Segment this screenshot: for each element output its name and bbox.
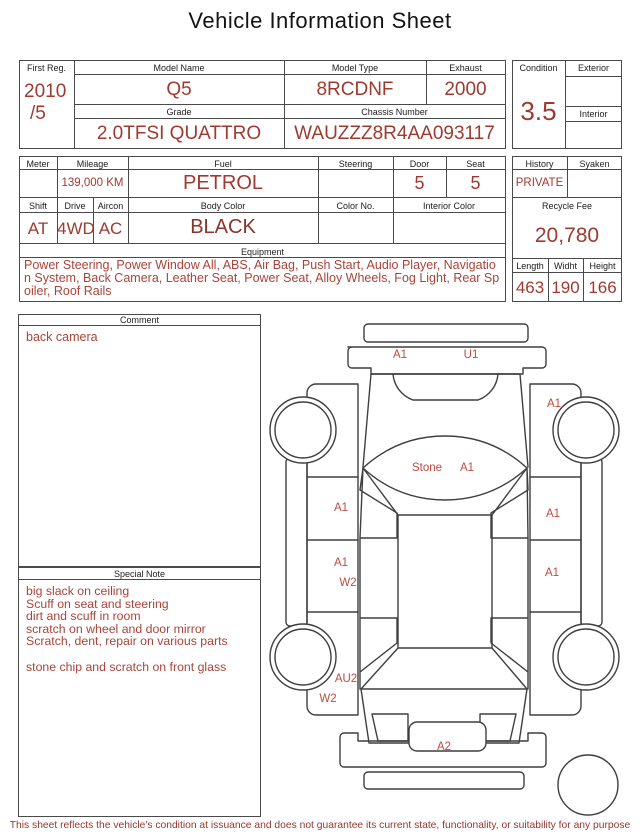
syaken-label: Syaken xyxy=(567,158,622,170)
left-side-panels xyxy=(307,384,358,715)
rear-right-wheel-arch xyxy=(553,624,619,690)
divider xyxy=(565,106,622,107)
damage-label-w2: W2 xyxy=(339,577,356,589)
comment-box xyxy=(18,314,261,567)
divider xyxy=(74,118,505,119)
length-label: Length xyxy=(512,260,548,272)
model-name-value: Q5 xyxy=(74,79,284,100)
length-value: 463 xyxy=(512,278,548,297)
damage-label-w2: W2 xyxy=(319,693,336,705)
width-label: Widht xyxy=(548,260,583,272)
special-note-line: big slack on ceiling xyxy=(26,585,251,598)
c-pillars xyxy=(361,648,527,689)
fuel-value: PETROL xyxy=(128,172,318,194)
shift-value: AT xyxy=(19,219,57,238)
width-value: 190 xyxy=(548,278,583,297)
color-no-label: Color No. xyxy=(318,200,393,212)
interior-color-label: Interior Color xyxy=(393,200,505,212)
door-value: 5 xyxy=(393,173,446,193)
mileage-label: Mileage xyxy=(57,158,128,170)
right-sill-panel xyxy=(581,458,602,626)
damage-label-au2: AU2 xyxy=(335,673,357,685)
damage-label-a1: A1 xyxy=(460,462,474,474)
taillights xyxy=(372,714,516,741)
windshield xyxy=(363,436,527,500)
rear-right-wheel xyxy=(558,629,614,685)
divider xyxy=(74,74,505,75)
divider xyxy=(512,258,622,259)
aircon-value: AC xyxy=(93,219,128,238)
a-pillars xyxy=(363,468,527,515)
hood-outline xyxy=(363,374,528,467)
damage-label-a1: A1 xyxy=(334,502,348,514)
grade-value: 2.0TFSI QUATTRO xyxy=(74,123,284,144)
recycle-fee-label: Recycle Fee xyxy=(512,200,622,212)
special-note-line: stone chip and scratch on front glass xyxy=(26,661,251,674)
vehicle-information-sheet: Vehicle Information Sheet First Reg. Mod… xyxy=(0,0,640,835)
rear-bumper xyxy=(340,733,546,767)
special-note-label: Special Note xyxy=(18,568,261,580)
tailgate xyxy=(361,689,527,743)
first-reg-month: /5 xyxy=(30,103,46,124)
condition-label: Condition xyxy=(512,62,565,74)
rear-left-wheel-arch xyxy=(270,624,336,690)
special-note-line: dirt and scuff in room xyxy=(26,610,251,623)
front-right-wheel xyxy=(558,402,614,458)
comment-text: back camera xyxy=(26,330,251,344)
divider xyxy=(19,243,506,244)
condition-value: 3.5 xyxy=(512,97,565,125)
front-left-wheel-arch xyxy=(270,397,336,463)
rear-trim-strip xyxy=(364,772,524,789)
divider xyxy=(512,197,622,198)
body-color-label: Body Color xyxy=(128,200,318,212)
special-note-line: Scratch, dent, repair on various parts xyxy=(26,635,251,648)
special-note-text: big slack on ceilingScuff on seat and st… xyxy=(26,585,251,673)
aircon-label: Aircon xyxy=(93,200,128,212)
model-name-label: Model Name xyxy=(74,62,284,74)
height-value: 166 xyxy=(583,278,622,297)
seat-value: 5 xyxy=(446,173,505,193)
body-color-value: BLACK xyxy=(128,216,318,238)
equipment-label: Equipment xyxy=(19,246,506,258)
front-trim-strip xyxy=(364,324,528,342)
damage-label-a1: A1 xyxy=(393,349,407,361)
front-bumper xyxy=(348,347,546,374)
model-type-value: 8RCDNF xyxy=(284,79,426,100)
chassis-label: Chassis Number xyxy=(284,106,505,118)
rear-left-wheel xyxy=(275,629,331,685)
damage-label-a1: A1 xyxy=(546,508,560,520)
grade-label: Grade xyxy=(74,106,284,118)
equipment-value: Power Steering, Power Window All, ABS, A… xyxy=(24,259,500,298)
license-recess xyxy=(409,722,486,751)
right-side-panels xyxy=(530,384,581,715)
page-title: Vehicle Information Sheet xyxy=(0,8,640,34)
history-value: PRIVATE xyxy=(512,177,567,190)
drive-label: Drive xyxy=(57,200,93,212)
left-body-edge xyxy=(360,468,397,689)
fuel-label: Fuel xyxy=(128,158,318,170)
model-type-label: Model Type xyxy=(284,62,426,74)
right-body-edge xyxy=(491,468,528,689)
front-right-wheel-arch xyxy=(553,397,619,463)
spare-tire xyxy=(558,755,618,815)
shift-label: Shift xyxy=(19,200,57,212)
front-left-wheel xyxy=(275,402,331,458)
left-panel-dividers xyxy=(307,477,358,612)
exhaust-label: Exhaust xyxy=(426,62,505,74)
divider xyxy=(74,104,505,105)
drive-value: 4WD xyxy=(57,219,93,238)
damage-labels: A1U1A1StoneA1A1A1A1W2A1AU2W2A2 xyxy=(319,349,561,753)
divider xyxy=(565,121,622,122)
history-label: History xyxy=(512,158,567,170)
damage-label-a1: A1 xyxy=(334,557,348,569)
damage-label-a1: A1 xyxy=(545,567,559,579)
recycle-fee-value: 20,780 xyxy=(512,224,622,247)
exterior-label: Exterior xyxy=(565,62,622,74)
cowl-lines xyxy=(393,374,498,400)
height-label: Height xyxy=(583,260,622,272)
mileage-value: 139,000 KM xyxy=(57,177,128,190)
meter-label: Meter xyxy=(19,158,57,170)
right-panel-dividers xyxy=(530,477,581,612)
damage-label-a1: A1 xyxy=(547,398,561,410)
door-label: Door xyxy=(393,158,446,170)
damage-label-stone: Stone xyxy=(412,462,442,474)
first-reg-label: First Reg. xyxy=(19,62,74,74)
left-sill-panel xyxy=(286,458,307,626)
roof-panel xyxy=(398,515,492,648)
divider xyxy=(512,272,622,273)
interior-label: Interior xyxy=(565,108,622,120)
chassis-value: WAUZZZ8R4AA093117 xyxy=(284,123,505,144)
divider xyxy=(565,76,622,77)
footer-disclaimer: This sheet reflects the vehicle's condit… xyxy=(0,820,640,831)
special-note-line xyxy=(26,648,251,661)
damage-label-a2: A2 xyxy=(437,741,451,753)
seat-label: Seat xyxy=(446,158,505,170)
comment-label: Comment xyxy=(18,314,261,326)
damage-label-u1: U1 xyxy=(464,349,479,361)
steering-label: Steering xyxy=(318,158,393,170)
first-reg-year: 2010 xyxy=(24,81,66,102)
exhaust-value: 2000 xyxy=(426,79,505,100)
